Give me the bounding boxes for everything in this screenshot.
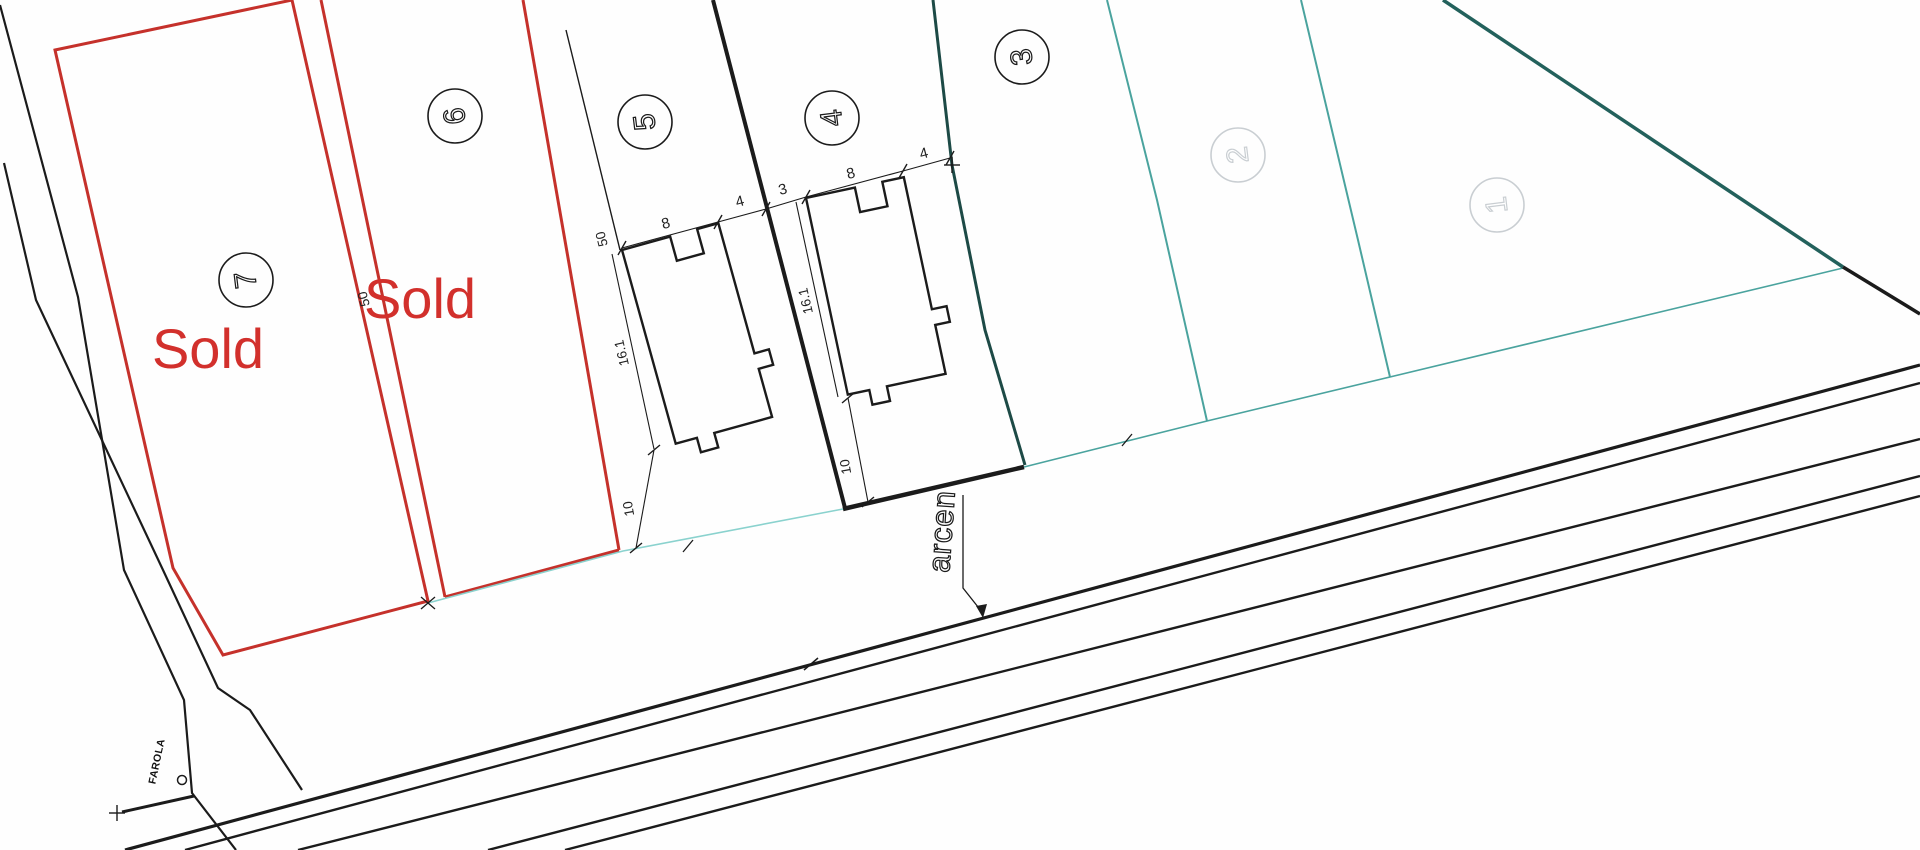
- dim-house5-setback: 10: [620, 500, 637, 517]
- lot-2-1-boundary: [1301, 0, 1390, 377]
- road-edge-line: [125, 365, 1920, 850]
- tick-mark: [683, 540, 693, 552]
- lot-6-sold-label: Sold: [364, 267, 476, 330]
- dim-house5-side-setback: 4: [734, 192, 746, 211]
- streetlamp-tick-line: [122, 796, 194, 812]
- lot-4-badge: 4: [805, 91, 859, 145]
- lot-number-badges: 7 6 5 4 3 2 1: [219, 30, 1524, 307]
- dim-house5-depth: 16.1: [611, 339, 632, 368]
- lot-1-number: 1: [1480, 195, 1515, 216]
- site-plan-drawing: FAROLA: [0, 0, 1920, 850]
- lot-5-4-boundary: [713, 0, 845, 508]
- lot-5-left-line: [566, 30, 620, 250]
- house-footprints: [622, 174, 963, 458]
- lot-3-2-boundary: [1107, 0, 1207, 421]
- dim-house-gap: 3: [777, 180, 789, 199]
- lot-6-badge: 6: [428, 89, 482, 143]
- lot-7-badge: 7: [219, 253, 273, 307]
- lot-3-number: 3: [1005, 47, 1040, 68]
- lot-boundaries: [55, 0, 1920, 655]
- dimensions: 8 4 3 8 4 16.1 16.1 10 10 50 50: [355, 144, 960, 553]
- dim-house4-width: 8: [845, 164, 857, 183]
- front-line-cyan: [428, 509, 843, 603]
- site-plan-page: FAROLA: [0, 0, 1920, 850]
- shoulder-annotation: arcen: [921, 489, 987, 618]
- perimeter-diagonal-continuation: [1843, 267, 1920, 314]
- lot-7-sold-label: Sold: [152, 317, 264, 380]
- left-street: FAROLA: [0, 5, 302, 850]
- dim-house4-depth: 16.1: [795, 287, 816, 316]
- lot-5-badge: 5: [618, 95, 672, 149]
- shoulder-leader-line: [963, 495, 982, 612]
- dimension-chain-line: [622, 158, 950, 248]
- dim-lot5-depth: 50: [593, 230, 611, 248]
- house-footprint-lot-5: [622, 219, 791, 458]
- dim-line-house5-setback: [636, 450, 654, 548]
- dim-house5-width: 8: [660, 214, 672, 233]
- lot-6-right-boundary: [523, 0, 619, 550]
- perimeter-diagonal: [1443, 0, 1843, 267]
- road-line: [185, 383, 1920, 850]
- lot-3-badge: 3: [995, 30, 1049, 84]
- dim-line-house4-setback: [848, 398, 868, 502]
- left-street-outer-line: [0, 5, 236, 850]
- lot-6-number: 6: [438, 106, 473, 127]
- lot-7-number: 7: [229, 270, 264, 291]
- dim-house4-side-setback: 4: [918, 144, 930, 163]
- streetlamp-symbol: [178, 776, 187, 785]
- road-lines: [125, 365, 1920, 850]
- lot-4-number: 4: [815, 108, 850, 129]
- road-line: [488, 476, 1920, 850]
- lot-6-front-boundary: [445, 550, 619, 597]
- lot-2-number: 2: [1221, 145, 1256, 166]
- road-line: [298, 439, 1920, 850]
- lot-2-badge: 2: [1211, 128, 1265, 182]
- lot-1-badge: 1: [1470, 178, 1524, 232]
- house-footprint-lot-4: [806, 174, 963, 409]
- lot-4-3-boundary: [933, 0, 1025, 465]
- dim-house4-setback: 10: [837, 458, 854, 475]
- lot-5-number: 5: [628, 112, 663, 133]
- streetlamp-label: FAROLA: [146, 738, 167, 786]
- shoulder-label: arcen: [921, 489, 962, 574]
